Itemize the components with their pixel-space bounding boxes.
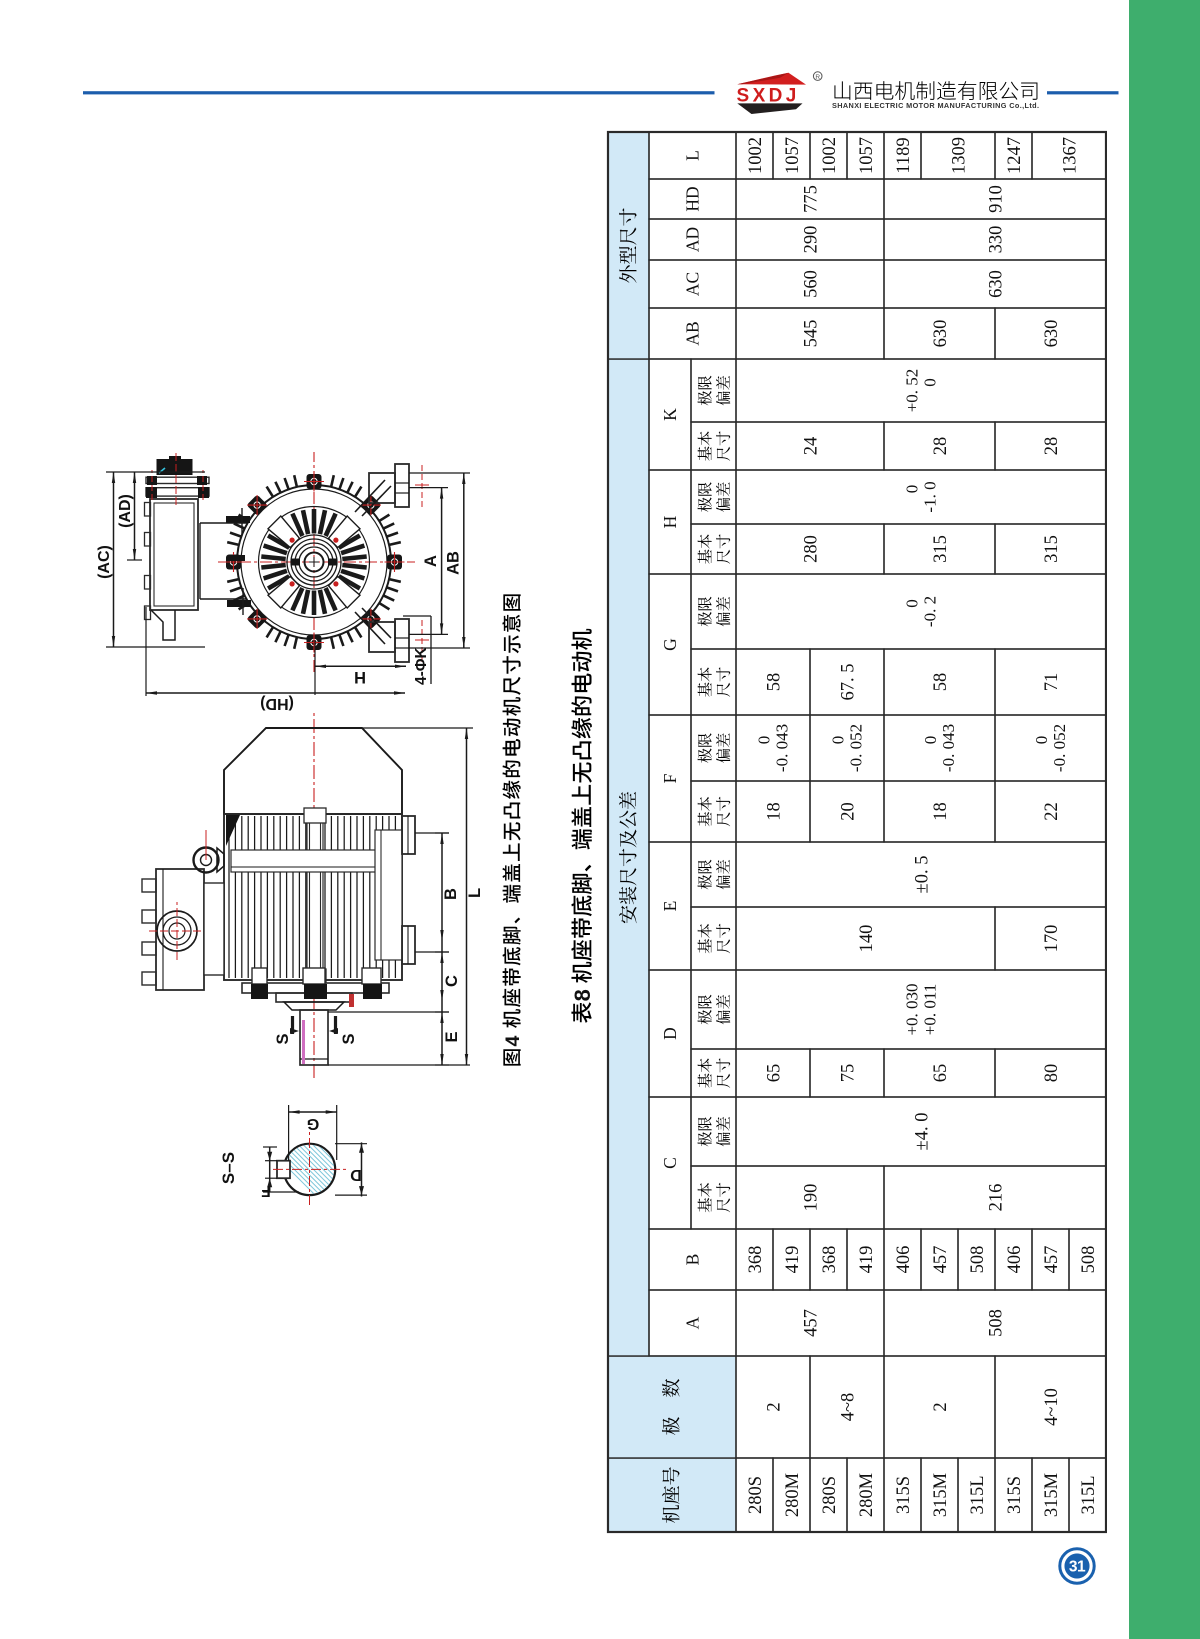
svg-text:0: 0 <box>903 485 922 494</box>
svg-text:28: 28 <box>1042 437 1062 456</box>
svg-text:H: H <box>354 668 366 686</box>
svg-text:457: 457 <box>931 1246 951 1274</box>
svg-text:910: 910 <box>987 185 1007 213</box>
svg-text:F: F <box>261 1182 270 1199</box>
svg-text:C: C <box>443 975 461 987</box>
svg-text:±0. 5: ±0. 5 <box>913 856 933 894</box>
svg-text:1057: 1057 <box>857 137 877 174</box>
svg-text:190: 190 <box>802 1184 822 1212</box>
svg-text:1189: 1189 <box>894 137 914 173</box>
svg-text:58: 58 <box>765 673 785 692</box>
svg-text:AC: AC <box>683 272 703 296</box>
svg-text:0: 0 <box>921 736 940 745</box>
svg-text:1002: 1002 <box>746 137 766 174</box>
svg-text:0: 0 <box>755 736 774 745</box>
svg-text:E: E <box>660 901 680 912</box>
svg-text:18: 18 <box>765 802 785 821</box>
svg-text:1367: 1367 <box>1061 137 1081 174</box>
svg-text:SXDJ: SXDJ <box>737 85 800 106</box>
svg-text:D: D <box>660 1027 680 1040</box>
svg-text:4~8: 4~8 <box>839 1393 859 1422</box>
svg-text:419: 419 <box>857 1246 877 1274</box>
svg-text:31: 31 <box>1069 1559 1086 1576</box>
svg-text:0: 0 <box>903 599 922 608</box>
svg-text:28: 28 <box>931 437 951 456</box>
svg-text:630: 630 <box>931 320 951 348</box>
svg-text:L: L <box>466 888 484 898</box>
svg-text:1057: 1057 <box>783 137 803 174</box>
svg-text:406: 406 <box>894 1246 914 1274</box>
svg-text:457: 457 <box>1042 1246 1062 1274</box>
svg-text:F: F <box>660 773 680 783</box>
svg-text:71: 71 <box>1042 673 1062 692</box>
svg-text:216: 216 <box>987 1184 1007 1212</box>
svg-text:170: 170 <box>1042 925 1062 953</box>
svg-text:280: 280 <box>802 535 822 563</box>
svg-text:22: 22 <box>1042 802 1062 821</box>
svg-text:290: 290 <box>802 226 822 254</box>
svg-text:D: D <box>350 1166 362 1183</box>
svg-text:75: 75 <box>839 1064 859 1083</box>
svg-text:8: 8 <box>570 989 595 1001</box>
svg-text:(AD): (AD) <box>117 494 134 528</box>
svg-text:508: 508 <box>987 1309 1007 1337</box>
svg-text:L: L <box>683 150 703 161</box>
svg-text:1309: 1309 <box>950 137 970 174</box>
svg-text:K: K <box>660 408 680 421</box>
svg-text:R: R <box>815 74 820 81</box>
svg-text:406: 406 <box>1005 1246 1025 1274</box>
svg-text:A: A <box>422 555 440 567</box>
svg-text:-0. 043: -0. 043 <box>773 724 792 772</box>
svg-text:B: B <box>442 888 460 900</box>
svg-text:G: G <box>307 1115 319 1132</box>
svg-text:0: 0 <box>1032 736 1051 745</box>
svg-text:419: 419 <box>783 1246 803 1274</box>
svg-text:B: B <box>683 1254 703 1266</box>
svg-text:2: 2 <box>765 1402 785 1411</box>
svg-text:S–S: S–S <box>219 1152 238 1184</box>
svg-text:+0. 030: +0. 030 <box>903 983 922 1035</box>
svg-text:-0. 052: -0. 052 <box>847 724 866 772</box>
svg-text:80: 80 <box>1042 1064 1062 1083</box>
svg-text:315: 315 <box>931 535 951 563</box>
svg-text:C: C <box>660 1157 680 1169</box>
svg-text:457: 457 <box>802 1309 822 1337</box>
svg-text:S: S <box>274 1033 292 1044</box>
svg-text:630: 630 <box>987 270 1007 298</box>
svg-text:775: 775 <box>802 185 822 213</box>
svg-text:SHANXI ELECTRIC MOTOR MANUFACT: SHANXI ELECTRIC MOTOR MANUFACTURING Co.,… <box>832 101 1039 110</box>
svg-text:±4. 0: ±4. 0 <box>913 1113 933 1151</box>
svg-text:E: E <box>443 1031 461 1042</box>
svg-text:65: 65 <box>765 1064 785 1083</box>
svg-text:24: 24 <box>802 437 822 456</box>
svg-text:508: 508 <box>1079 1246 1099 1274</box>
svg-text:330: 330 <box>987 226 1007 254</box>
svg-text:67. 5: 67. 5 <box>839 664 859 701</box>
svg-text:G: G <box>660 638 680 651</box>
svg-text:1002: 1002 <box>820 137 840 174</box>
svg-text:A: A <box>683 1316 703 1329</box>
svg-text:AB: AB <box>445 551 463 575</box>
svg-text:560: 560 <box>802 270 822 298</box>
svg-text:0: 0 <box>829 736 848 745</box>
svg-text:65: 65 <box>931 1064 951 1083</box>
svg-text:S: S <box>340 1033 358 1044</box>
svg-text:58: 58 <box>931 673 951 692</box>
svg-text:368: 368 <box>820 1246 840 1274</box>
svg-text:1247: 1247 <box>1005 137 1025 174</box>
svg-text:368: 368 <box>746 1246 766 1274</box>
svg-text:-0. 052: -0. 052 <box>1050 724 1069 772</box>
svg-text:-0. 043: -0. 043 <box>939 724 958 772</box>
svg-text:4~10: 4~10 <box>1042 1388 1062 1426</box>
svg-text:0: 0 <box>921 378 940 387</box>
svg-text:20: 20 <box>839 802 859 821</box>
svg-text:140: 140 <box>857 925 877 953</box>
svg-text:4: 4 <box>502 1034 524 1046</box>
svg-text:+0. 52: +0. 52 <box>903 369 922 413</box>
svg-text:-1. 0: -1. 0 <box>921 481 940 512</box>
svg-text:AB: AB <box>683 321 703 345</box>
svg-text:+0. 011: +0. 011 <box>921 984 940 1035</box>
svg-text:-0. 2: -0. 2 <box>921 596 940 627</box>
svg-text:AD: AD <box>683 227 703 252</box>
svg-text:HD: HD <box>683 186 703 211</box>
svg-text:630: 630 <box>1042 320 1062 348</box>
svg-text:4-ΦK: 4-ΦK <box>413 646 430 685</box>
svg-text:H: H <box>660 515 680 528</box>
svg-text:18: 18 <box>931 802 951 821</box>
svg-text:315: 315 <box>1042 535 1062 563</box>
svg-text:508: 508 <box>968 1246 988 1274</box>
svg-text:(HD): (HD) <box>260 695 294 712</box>
svg-text:545: 545 <box>802 320 822 348</box>
svg-text:2: 2 <box>931 1402 951 1411</box>
svg-text:(AC): (AC) <box>96 545 113 579</box>
